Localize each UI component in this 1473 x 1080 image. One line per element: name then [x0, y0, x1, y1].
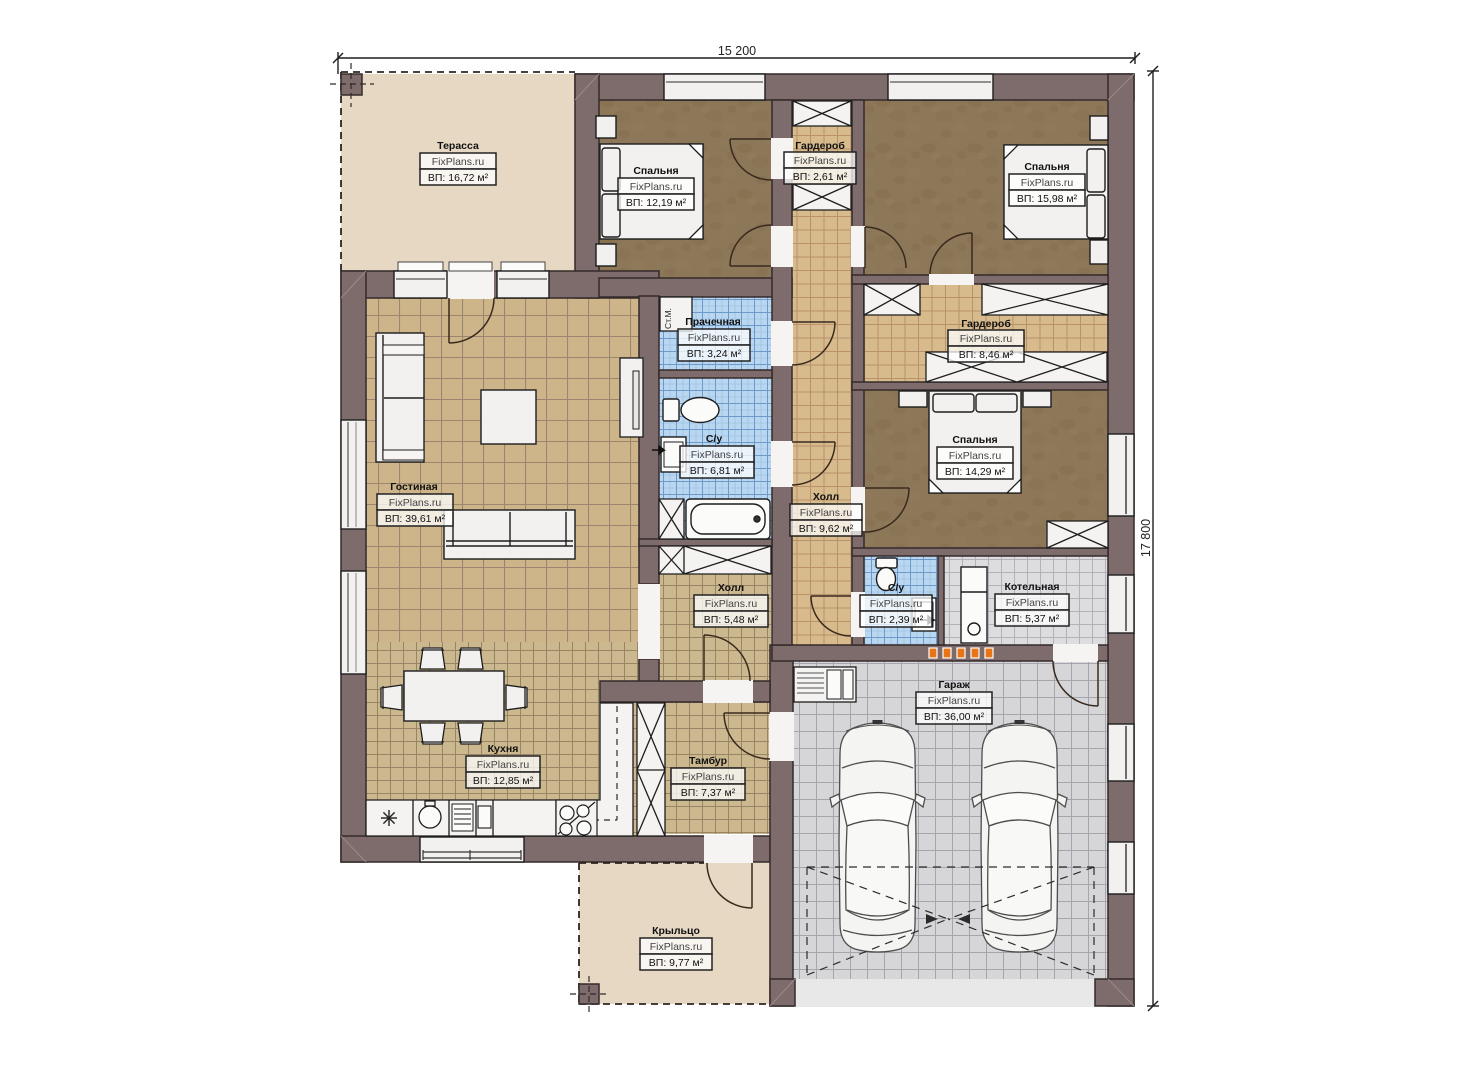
svg-text:17 800: 17 800: [1139, 519, 1153, 557]
svg-text:FixPlans.ru: FixPlans.ru: [800, 507, 853, 519]
svg-text:Котельная: Котельная: [1005, 581, 1060, 593]
svg-text:FixPlans.ru: FixPlans.ru: [1006, 597, 1059, 609]
svg-text:ВП: 7,37 м²: ВП: 7,37 м²: [681, 787, 736, 799]
svg-text:FixPlans.ru: FixPlans.ru: [688, 332, 741, 344]
svg-text:ВП: 2,39 м²: ВП: 2,39 м²: [869, 614, 924, 626]
svg-text:ВП: 8,46 м²: ВП: 8,46 м²: [959, 349, 1014, 361]
svg-text:FixPlans.ru: FixPlans.ru: [691, 449, 744, 461]
svg-text:FixPlans.ru: FixPlans.ru: [477, 759, 530, 771]
svg-text:ВП: 39,61 м²: ВП: 39,61 м²: [385, 513, 446, 525]
svg-text:FixPlans.ru: FixPlans.ru: [928, 695, 981, 707]
svg-text:Спальня: Спальня: [633, 165, 678, 177]
svg-text:FixPlans.ru: FixPlans.ru: [432, 156, 485, 168]
svg-text:ВП: 2,61 м²: ВП: 2,61 м²: [793, 171, 848, 183]
svg-text:ВП: 14,29 м²: ВП: 14,29 м²: [945, 466, 1006, 478]
svg-text:ВП: 12,19 м²: ВП: 12,19 м²: [626, 197, 687, 209]
svg-text:Ст.М.: Ст.М.: [663, 308, 673, 329]
svg-text:Гараж: Гараж: [938, 679, 970, 691]
svg-text:Терасса: Терасса: [437, 140, 479, 152]
svg-text:Кухня: Кухня: [488, 743, 519, 755]
svg-text:Прачечная: Прачечная: [685, 316, 741, 328]
svg-text:FixPlans.ru: FixPlans.ru: [389, 497, 442, 509]
svg-text:Холл: Холл: [813, 491, 839, 503]
svg-text:ВП: 15,98 м²: ВП: 15,98 м²: [1017, 193, 1078, 205]
svg-text:FixPlans.ru: FixPlans.ru: [630, 181, 683, 193]
svg-text:С/у: С/у: [706, 433, 723, 445]
svg-text:Крыльцо: Крыльцо: [652, 925, 700, 937]
svg-text:С/у: С/у: [888, 582, 905, 594]
svg-text:ВП: 9,62 м²: ВП: 9,62 м²: [799, 523, 854, 535]
svg-text:Спальня: Спальня: [1024, 161, 1069, 173]
svg-text:ВП: 16,72 м²: ВП: 16,72 м²: [428, 172, 489, 184]
svg-text:FixPlans.ru: FixPlans.ru: [682, 771, 735, 783]
svg-text:ВП: 36,00 м²: ВП: 36,00 м²: [924, 711, 985, 723]
svg-text:FixPlans.ru: FixPlans.ru: [705, 598, 758, 610]
svg-text:FixPlans.ru: FixPlans.ru: [949, 450, 1002, 462]
svg-text:15 200: 15 200: [718, 44, 756, 58]
svg-text:FixPlans.ru: FixPlans.ru: [1021, 177, 1074, 189]
svg-text:Гардероб: Гардероб: [795, 140, 845, 152]
svg-text:ВП: 6,81 м²: ВП: 6,81 м²: [690, 465, 745, 477]
svg-text:Холл: Холл: [718, 582, 744, 594]
svg-text:ВП: 5,37 м²: ВП: 5,37 м²: [1005, 613, 1060, 625]
svg-text:FixPlans.ru: FixPlans.ru: [794, 155, 847, 167]
svg-text:Гостиная: Гостиная: [390, 481, 437, 493]
svg-text:ВП: 9,77 м²: ВП: 9,77 м²: [649, 957, 704, 969]
svg-text:FixPlans.ru: FixPlans.ru: [650, 941, 703, 953]
svg-text:Гардероб: Гардероб: [961, 318, 1011, 330]
svg-text:FixPlans.ru: FixPlans.ru: [960, 333, 1013, 345]
svg-text:ВП: 3,24 м²: ВП: 3,24 м²: [687, 348, 742, 360]
svg-text:ВП: 5,48 м²: ВП: 5,48 м²: [704, 614, 759, 626]
svg-text:Спальня: Спальня: [952, 434, 997, 446]
svg-text:FixPlans.ru: FixPlans.ru: [870, 598, 923, 610]
svg-text:ВП: 12,85 м²: ВП: 12,85 м²: [473, 775, 534, 787]
svg-text:Тамбур: Тамбур: [689, 755, 727, 767]
